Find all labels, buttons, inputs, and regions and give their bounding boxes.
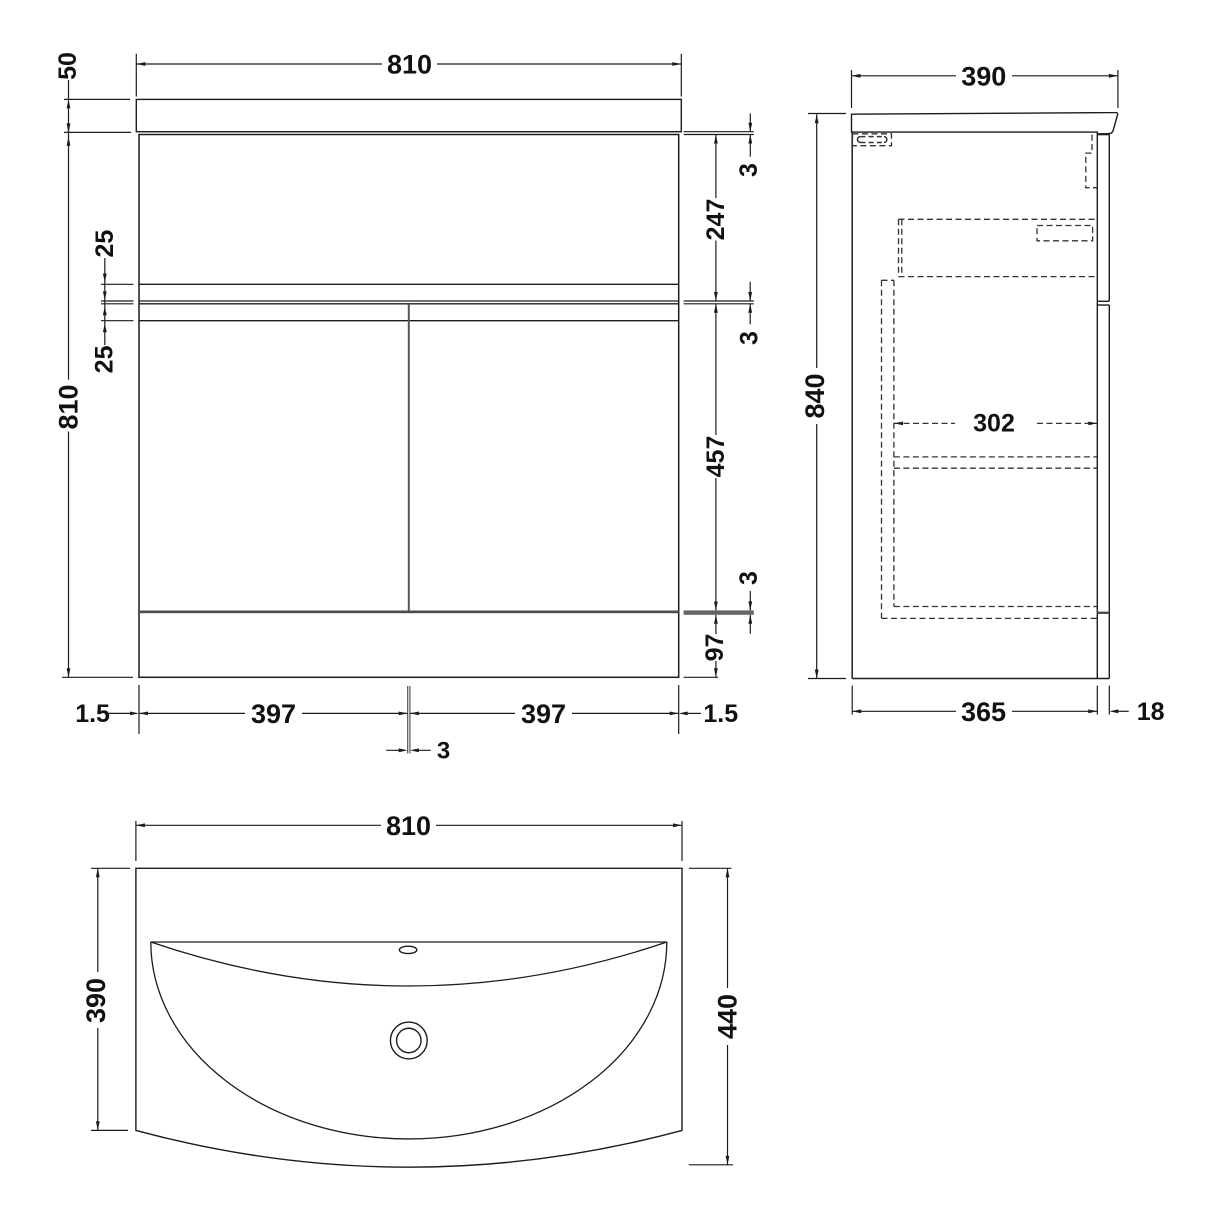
svg-text:97: 97: [701, 634, 729, 662]
svg-text:50: 50: [54, 52, 82, 80]
svg-text:18: 18: [1137, 698, 1165, 726]
svg-text:810: 810: [54, 384, 84, 429]
svg-text:247: 247: [702, 199, 730, 241]
svg-text:390: 390: [81, 978, 111, 1023]
svg-text:390: 390: [961, 61, 1006, 91]
svg-text:25: 25: [91, 345, 119, 373]
svg-text:1.5: 1.5: [75, 700, 110, 728]
svg-text:3: 3: [735, 571, 763, 585]
svg-text:457: 457: [702, 436, 730, 478]
svg-text:397: 397: [251, 699, 296, 729]
svg-text:25: 25: [91, 230, 119, 258]
svg-text:3: 3: [437, 737, 450, 764]
svg-text:302: 302: [973, 409, 1015, 437]
svg-text:810: 810: [386, 811, 431, 841]
svg-text:3: 3: [736, 331, 764, 345]
svg-text:810: 810: [387, 50, 432, 80]
svg-text:365: 365: [961, 697, 1006, 727]
svg-text:440: 440: [712, 994, 742, 1039]
svg-text:397: 397: [521, 699, 566, 729]
svg-text:840: 840: [800, 373, 830, 418]
svg-text:1.5: 1.5: [703, 700, 738, 728]
svg-text:3: 3: [735, 163, 763, 177]
